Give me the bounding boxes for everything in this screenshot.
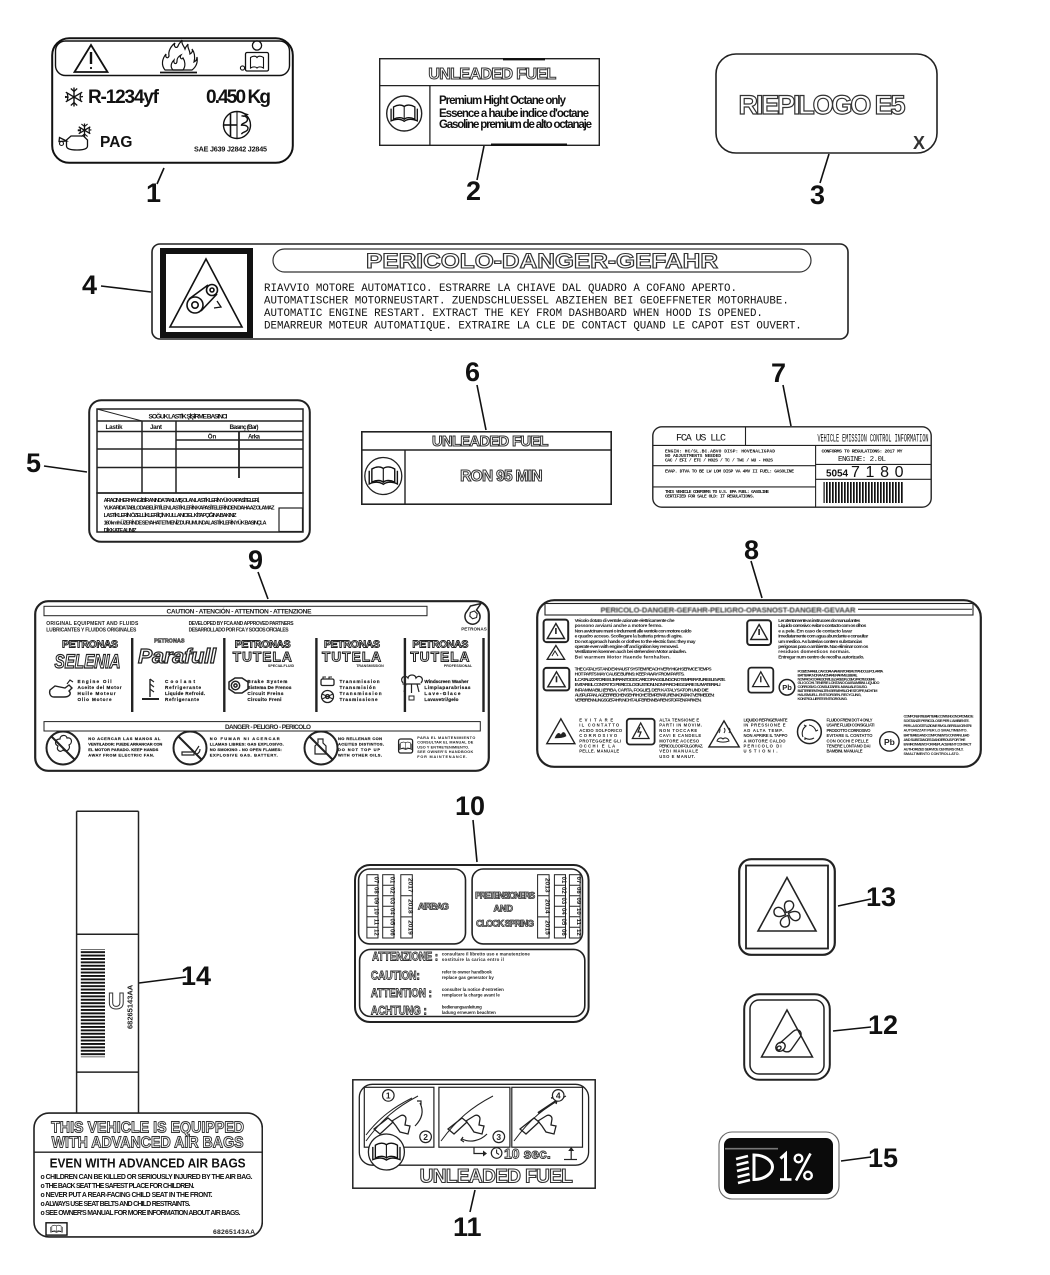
svg-text:Liquide Refroid.: Liquide Refroid.: [165, 691, 205, 696]
svg-text:PRETENSIONERS: PRETENSIONERS: [475, 891, 535, 901]
svg-text:LLAMAS LIBRES: GAS EXPLOSIVO.: LLAMAS LIBRES: GAS EXPLOSIVO.: [210, 742, 284, 747]
svg-text:ARACIN HERHANGİ BİR ANINDA TAK: ARACIN HERHANGİ BİR ANINDA TAKILMIŞ OLAN…: [104, 497, 260, 504]
svg-text:SMALTIMENTO CONTROLLATO.: SMALTIMENTO CONTROLLATO.: [904, 752, 960, 756]
svg-text:2014: 2014: [543, 899, 550, 914]
svg-text:SOSTANZE PERICOLOSE PER L'AMBI: SOSTANZE PERICOLOSE PER L'AMBIENTE.: [904, 719, 970, 723]
svg-text:DO NOT TOP UP: DO NOT TOP UP: [338, 747, 380, 752]
svg-text:01: 01: [560, 877, 566, 884]
svg-text:Coolant: Coolant: [165, 679, 195, 684]
svg-text:Aceite del Motor: Aceite del Motor: [78, 685, 122, 690]
svg-text:CONSULTAR EL MANUAL DE: CONSULTAR EL MANUAL DE: [417, 741, 473, 745]
svg-text:Engine Oil: Engine Oil: [78, 679, 112, 684]
svg-text:Premium Hight Octane only: Premium Hight Octane only: [439, 95, 567, 107]
svg-text:08: 08: [575, 887, 581, 894]
svg-text:consulter la notice d'entretie: consulter la notice d'entretien: [442, 987, 504, 992]
svg-text:TUTELA: TUTELA: [233, 650, 293, 665]
svg-text:Transmisión: Transmisión: [340, 685, 376, 690]
svg-text:UNLEADED FUEL: UNLEADED FUEL: [428, 66, 556, 83]
svg-text:AUTORIZZATI PER LO SMALTIMENTO: AUTORIZZATI PER LO SMALTIMENTO.: [904, 729, 968, 733]
svg-text:Lave-Glace: Lave-Glace: [424, 691, 460, 696]
svg-text:VEHICLE EMISSION CONTROL INFOR: VEHICLE EMISSION CONTROL INFORMATION: [818, 434, 929, 446]
svg-text:CAC / EFI / ETC / HO2S / TC /: CAC / EFI / ETC / HO2S / TC / TWC / WU -…: [665, 458, 773, 464]
svg-text:1: 1: [386, 1090, 391, 1100]
svg-text:SEE OWNER'S HANDBOOK: SEE OWNER'S HANDBOOK: [417, 750, 473, 754]
svg-text:04: 04: [388, 908, 394, 915]
svg-text:06: 06: [388, 929, 394, 936]
svg-text:Sistema De Frenos: Sistema De Frenos: [247, 685, 291, 690]
svg-text:perigosas para o ambiente. Nao: perigosas para o ambiente. Nao eliminar …: [778, 644, 868, 650]
svg-text:12: 12: [575, 929, 581, 936]
svg-text:04: 04: [560, 908, 566, 915]
svg-text:USO E MANUT.: USO E MANUT.: [659, 754, 695, 759]
svg-text:02: 02: [388, 887, 394, 894]
svg-text:ACHTUNG :: ACHTUNG :: [371, 1006, 427, 1018]
svg-text:SAE J639 J2842 J2845: SAE J639 J2842 J2845: [194, 145, 267, 154]
svg-text:BAMBINI. MANUALE: BAMBINI. MANUALE: [827, 749, 863, 754]
svg-text:CAUTION - ATENCIÓN - ATTENTION: CAUTION - ATENCIÓN - ATTENTION - ATTENZI…: [167, 607, 313, 616]
svg-text:2017: 2017: [407, 878, 414, 893]
svg-text:Circuito Freni: Circuito Freni: [247, 697, 281, 702]
svg-text:11: 11: [373, 919, 379, 926]
svg-text:RIAVVIO MOTORE AUTOMATICO. EST: RIAVVIO MOTORE AUTOMATICO. ESTRARRE LA C…: [264, 283, 737, 295]
svg-text:Bei warmem Motor Haende fernha: Bei warmem Motor Haende fernhalten.: [575, 654, 672, 660]
svg-text:Ler atentamente as instrucoes: Ler atentamente as instrucoes do manual …: [778, 618, 860, 624]
svg-text:2019: 2019: [407, 920, 414, 935]
svg-text:3: 3: [496, 1132, 501, 1142]
svg-text:consultare il libretto uso e m: consultare il libretto uso e manutenzion…: [442, 952, 531, 957]
svg-text:Jant: Jant: [150, 424, 163, 431]
svg-text:UNLEADED FUEL: UNLEADED FUEL: [420, 1167, 574, 1188]
svg-text:Do not approach hands or cloth: Do not approach hands or clothes to the …: [575, 639, 696, 645]
svg-text:LASTİKLERİN ÖZELLİKLERİ İÇİN K: LASTİKLERİN ÖZELLİKLERİ İÇİN KULLANICI E…: [104, 511, 238, 519]
svg-text:09: 09: [373, 898, 379, 905]
svg-text:o CHILDREN CAN BE KILLED OR SE: o CHILDREN CAN BE KILLED OR SERIOUSLY IN…: [41, 1174, 253, 1181]
svg-text:SELENIA: SELENIA: [55, 652, 121, 673]
svg-text:possono avviarsi anche a motor: possono avviarsi anche a motore fermo.: [575, 623, 664, 629]
svg-text:02: 02: [560, 887, 566, 894]
svg-text:TRANSMISSION: TRANSMISSION: [356, 664, 384, 668]
svg-text:Arka: Arka: [248, 434, 261, 441]
svg-text:ENGINE: 2.0L: ENGINE: 2.0L: [838, 456, 886, 464]
svg-text:RIEPILOGO E5: RIEPILOGO E5: [739, 90, 906, 120]
svg-text:VENTILADOR: PUEDE ARRANCAR CON: VENTILADOR: PUEDE ARRANCAR CON: [88, 742, 162, 747]
svg-text:Non avvicinare mani o indument: Non avvicinare mani o indumenti alle ven…: [575, 628, 692, 634]
svg-text:ladung erneuern beachten: ladung erneuern beachten: [442, 1010, 496, 1015]
svg-text:2013: 2013: [543, 878, 550, 893]
svg-text:Huile Moteur: Huile Moteur: [78, 691, 116, 696]
svg-text:o NEVER PUT A REAR-FACING CHIL: o NEVER PUT A REAR-FACING CHILD SEAT IN …: [41, 1192, 213, 1199]
svg-text:Pb: Pb: [884, 737, 895, 747]
svg-text:06: 06: [560, 929, 566, 936]
svg-text:WITH ADVANCED AIR BAGS: WITH ADVANCED AIR BAGS: [52, 1135, 244, 1152]
svg-text:PARA EL MANTENIMIENTO: PARA EL MANTENIMIENTO: [417, 736, 475, 740]
svg-text:operate even with engine off a: operate even with engine off and ignitio…: [575, 644, 680, 650]
svg-text:DESARROLLADO POR FCA Y SOCIOS: DESARROLLADO POR FCA Y SOCIOS OFICIALES: [189, 628, 290, 634]
svg-text:160 km/h ÜZERİNDE SEYAHAT ETME: 160 km/h ÜZERİNDE SEYAHAT ETMENİZ DURUMU…: [104, 520, 267, 527]
svg-text:AUTOMATISCHER MOTORNEUSTART. Z: AUTOMATISCHER MOTORNEUSTART. ZUENDSCHLUE…: [264, 296, 789, 308]
svg-text:01: 01: [388, 877, 394, 884]
svg-text:AND: AND: [494, 904, 514, 914]
svg-text:Gasoline premium de alto octan: Gasoline premium de alto octanaje: [439, 119, 592, 131]
svg-text:PER LA SOSTITUZIONE RIVOLGERSI: PER LA SOSTITUZIONE RIVOLGERSI AI CENTRI: [904, 724, 972, 728]
svg-text:refer to owner handbook: refer to owner handbook: [442, 970, 493, 975]
svg-text:ORIGINAL EQUIPMENT AND FLUIDS: ORIGINAL EQUIPMENT AND FLUIDS: [46, 621, 139, 627]
svg-text:THE CATALYST AND EXHAUST SYSTE: THE CATALYST AND EXHAUST SYSTEM REACH VE…: [575, 667, 713, 673]
svg-text:03: 03: [388, 898, 394, 905]
svg-text:e a pele. Em caso de contacto: e a pele. Em caso de contacto lavar: [778, 628, 852, 634]
svg-text:0.450 Kg: 0.450 Kg: [206, 87, 271, 108]
svg-text:SOĞUK LASTİK ŞİŞİRME BASINCI: SOĞUK LASTİK ŞİŞİRME BASINCI: [149, 412, 228, 421]
svg-text:EVAP. DTVA TO BE LW LOM DIS: EVAP. DTVA TO BE LW LOM DISP VA 4MV II F…: [665, 469, 794, 475]
svg-text:BATTERIES AND COMPONENTS CONTA: BATTERIES AND COMPONENTS CONTAIN LEAD: [904, 733, 970, 737]
svg-text:o SEE OWNER'S MANUAL FOR MORE: o SEE OWNER'S MANUAL FOR MORE INFORMATIO…: [41, 1210, 241, 1217]
svg-text:residuos domesticos normais.: residuos domesticos normais.: [778, 649, 851, 655]
svg-text:X: X: [913, 133, 925, 153]
svg-text:NO FUMAR NI ACERCAR: NO FUMAR NI ACERCAR: [210, 736, 280, 741]
svg-text:CONFORMS TO REGULATIONS: 2017: CONFORMS TO REGULATIONS: 2017 MY: [822, 449, 903, 455]
svg-text:11: 11: [575, 919, 581, 926]
svg-text:Transmission: Transmission: [340, 691, 382, 696]
svg-text:Entregar num centro de recolha: Entregar num centro de recolha autorizad…: [778, 654, 865, 660]
svg-text:PAG: PAG: [100, 134, 132, 151]
svg-text:12: 12: [373, 929, 379, 936]
svg-text:Parafull: Parafull: [138, 646, 216, 668]
svg-text:e quadro acceso. Scollegare la: e quadro acceso. Scollegare la batteria …: [575, 634, 684, 640]
svg-text:o THE BACK SEAT THE SAFEST PLA: o THE BACK SEAT THE SAFEST PLACE FOR CHI…: [41, 1183, 195, 1190]
svg-text:10: 10: [373, 908, 379, 915]
svg-text:AUTHORIZED SERVICE CENTERS ONL: AUTHORIZED SERVICE CENTERS ONLY.: [904, 747, 964, 751]
svg-text:DEVELOPED BY FCA AND APPROVED: DEVELOPED BY FCA AND APPROVED PARTNERS: [189, 621, 295, 627]
svg-text:EVITARE IL CONTATTO: PERICOLO: EVITARE IL CONTATTO: PERICOLO DI USTIONI…: [575, 682, 722, 688]
svg-text:Brake System: Brake System: [247, 679, 287, 684]
svg-text:CLOCK SPRING: CLOCK SPRING: [476, 919, 534, 929]
svg-text:Basınç (Bar): Basınç (Bar): [230, 424, 259, 431]
svg-text:Limpiaparabrisas: Limpiaparabrisas: [424, 685, 470, 690]
svg-text:DEMARREUR MOTEUR AUTOMATIQUE.: DEMARREUR MOTEUR AUTOMATIQUE. EXTRAIRE L…: [264, 321, 802, 333]
svg-text:DANGER - PELIGRO - PERICOLO: DANGER - PELIGRO - PERICOLO: [225, 724, 311, 731]
svg-text:05: 05: [388, 919, 394, 926]
svg-text:imediatamente com agua abundan: imediatamente com agua abundante e consu…: [778, 634, 868, 640]
svg-text:Transmission: Transmission: [340, 679, 380, 684]
svg-text:PELLE. MANUALE: PELLE. MANUALE: [579, 749, 619, 754]
svg-text:05: 05: [560, 919, 566, 926]
svg-text:2018: 2018: [407, 899, 414, 914]
svg-text:IL CATALIZZATORE E L'IMPIANTO: IL CATALIZZATORE E L'IMPIANTO DI SCARICO…: [575, 677, 727, 683]
svg-text:03: 03: [560, 898, 566, 905]
svg-text:R-1234yf: R-1234yf: [88, 87, 160, 108]
svg-text:EVEN WITH ADVANCED AIR BAGS: EVEN WITH ADVANCED AIR BAGS: [50, 1155, 246, 1170]
svg-text:TUTELA: TUTELA: [322, 650, 382, 665]
svg-text:AIRBAG: AIRBAG: [418, 902, 449, 913]
svg-text:NO RELLENAR CON: NO RELLENAR CON: [338, 736, 382, 741]
svg-text:NO SMOKING - NO OPEN FLAMES:: NO SMOKING - NO OPEN FLAMES:: [210, 747, 282, 752]
svg-text:DİKKATE ALINIZ: DİKKATE ALINIZ: [104, 527, 138, 534]
svg-text:EL MOTOR PARADO. KEEP HANDS: EL MOTOR PARADO. KEEP HANDS: [88, 747, 158, 752]
svg-text:Circuit Freins: Circuit Freins: [247, 691, 283, 696]
svg-text:PERICOLO-DANGER-GEFAHR: PERICOLO-DANGER-GEFAHR: [366, 250, 718, 273]
svg-text:2: 2: [423, 1132, 428, 1142]
svg-text:07: 07: [373, 877, 379, 884]
svg-text:o ALWAYS USE SEAT BELTS AND CH: o ALWAYS USE SEAT BELTS AND CHILD RESTRA…: [41, 1201, 191, 1208]
svg-text:LUBRICANTES Y FLUIDOS ORIGINAL: LUBRICANTES Y FLUIDOS ORIGINALES: [46, 628, 137, 634]
svg-text:Windscreen Washer: Windscreen Washer: [424, 679, 468, 684]
svg-text:AWAY FROM ELECTRIC FAN.: AWAY FROM ELECTRIC FAN.: [88, 753, 154, 758]
svg-text:5054: 5054: [826, 469, 848, 480]
svg-text:bedienungsanleitung: bedienungsanleitung: [442, 1005, 482, 1010]
svg-text:remplacer la charge avant le: remplacer la charge avant le: [442, 993, 501, 998]
svg-text:68265143AA: 68265143AA: [213, 1229, 255, 1236]
svg-text:4: 4: [556, 1090, 561, 1100]
svg-text:U: U: [108, 988, 125, 1014]
svg-text:AUTOMATIC ENGINE RESTART. EXTR: AUTOMATIC ENGINE RESTART. EXTRACT THE KE…: [264, 308, 763, 320]
svg-text:Lastik: Lastik: [106, 424, 123, 431]
svg-text:10 sec.: 10 sec.: [504, 1146, 551, 1162]
svg-text:INFIAMMABILI (ERBA, CARTA, FOG: INFIAMMABILI (ERBA, CARTA, FOGLIE). DER …: [575, 687, 710, 693]
svg-text:USO Y ENTRETENIMIENTO.: USO Y ENTRETENIMIENTO.: [417, 745, 469, 749]
svg-text:07: 07: [575, 877, 581, 884]
svg-text:NO ACERCAR LAS MANOS AL: NO ACERCAR LAS MANOS AL: [88, 736, 161, 741]
svg-text:KONTROLLIERTE ENTSORGUNG.: KONTROLLIERTE ENTSORGUNG.: [798, 696, 848, 701]
svg-text:FOR MAINTENANCE.: FOR MAINTENANCE.: [417, 755, 467, 759]
svg-text:COMPONENTI E BATTERIE CONTENGO: COMPONENTI E BATTERIE CONTENGONO PIOMBO …: [904, 715, 974, 719]
svg-text:sostituire la carica entro il: sostituire la carica entro il: [442, 957, 504, 962]
svg-text:WITH OTHER OILS.: WITH OTHER OILS.: [338, 753, 382, 758]
svg-text:Refrigerante: Refrigerante: [165, 685, 201, 690]
svg-text:AUSPUFFANLAGE ERREICHEN SEHR H: AUSPUFFANLAGE ERREICHEN SEHR HOHE TEMPER…: [575, 693, 715, 699]
svg-text:08: 08: [373, 887, 379, 894]
svg-text:Refrigerante: Refrigerante: [165, 697, 199, 702]
svg-text:FCA US LLC: FCA US LLC: [676, 434, 726, 445]
svg-text:09: 09: [575, 898, 581, 905]
svg-text:Pb: Pb: [782, 683, 792, 692]
svg-text:YUKARIDA TABLODA BELİRTİLEN LA: YUKARIDA TABLODA BELİRTİLEN LASTİKLERİN …: [104, 505, 276, 512]
svg-text:Lavavetri/gelo: Lavavetri/gelo: [424, 697, 458, 702]
svg-text:PERICOLO-DANGER-GEFAHR-PELIGRO: PERICOLO-DANGER-GEFAHR-PELIGRO-OPASNOST-…: [601, 605, 857, 614]
svg-text:VERBRENNUNGSGEFAHR. NICHT AUF: VERBRENNUNGSGEFAHR. NICHT AUF BRENNBAREN…: [575, 698, 703, 704]
svg-text:CERTIFIED FOR SALE OLD: IT REG: CERTIFIED FOR SALE OLD: IT REGULATIONS.: [665, 494, 755, 500]
svg-text:SPECIALFLUID: SPECIALFLUID: [268, 664, 295, 668]
svg-text:PROFESSIONAL: PROFESSIONAL: [444, 664, 473, 668]
svg-text:ACEITES DISTINTOS.: ACEITES DISTINTOS.: [338, 742, 384, 747]
svg-text:PETRONAS: PETRONAS: [62, 639, 118, 651]
svg-text:2015: 2015: [543, 920, 550, 935]
svg-text:AND SUBSTANCES DANGEROUS FOR T: AND SUBSTANCES DANGEROUS FOR THE: [904, 738, 966, 742]
svg-text:ATTENTION :: ATTENTION :: [371, 988, 432, 1000]
svg-text:ATTENZIONE :: ATTENZIONE :: [372, 952, 438, 964]
svg-text:Ventilatoren koennen auch bei: Ventilatoren koennen auch bei stehendem …: [575, 649, 688, 655]
svg-text:HOT PARTS MAY CAUSE BURNS: KEE: HOT PARTS MAY CAUSE BURNS: KEEP AWAY FRO…: [575, 672, 686, 678]
svg-text:PETRONAS: PETRONAS: [461, 627, 487, 632]
svg-text:Olio Motore: Olio Motore: [78, 697, 112, 702]
svg-text:Veicolo dotato di ventole azio: Veicolo dotato di ventole azionate elett…: [575, 618, 675, 624]
svg-text:TUTELA: TUTELA: [410, 650, 470, 665]
svg-text:CAUTION:: CAUTION:: [371, 971, 420, 983]
svg-text:ENVIRONMENT. FOR REPLACEMENT C: ENVIRONMENT. FOR REPLACEMENT CONTACT: [904, 743, 973, 747]
svg-text:replace gas generator by: replace gas generator by: [442, 975, 495, 980]
svg-text:Ön: Ön: [208, 434, 217, 441]
svg-text:Trasmissione: Trasmissione: [340, 697, 378, 702]
svg-text:68265143AA: 68265143AA: [126, 984, 135, 1029]
svg-text:10: 10: [575, 908, 581, 915]
svg-text:PETRONAS: PETRONAS: [154, 639, 185, 645]
svg-text:EXPLOSIVE GAS. BATTERY.: EXPLOSIVE GAS. BATTERY.: [210, 753, 278, 758]
svg-text:Liquido corrosivo: evitar o co: Liquido corrosivo: evitar o contacto com…: [778, 623, 866, 629]
svg-text:um medico. As baterias contem: um medico. As baterias contem substancia…: [778, 639, 862, 645]
svg-text:UNLEADED FUEL: UNLEADED FUEL: [432, 434, 549, 450]
svg-text:RON 95 MIN: RON 95 MIN: [460, 468, 542, 485]
